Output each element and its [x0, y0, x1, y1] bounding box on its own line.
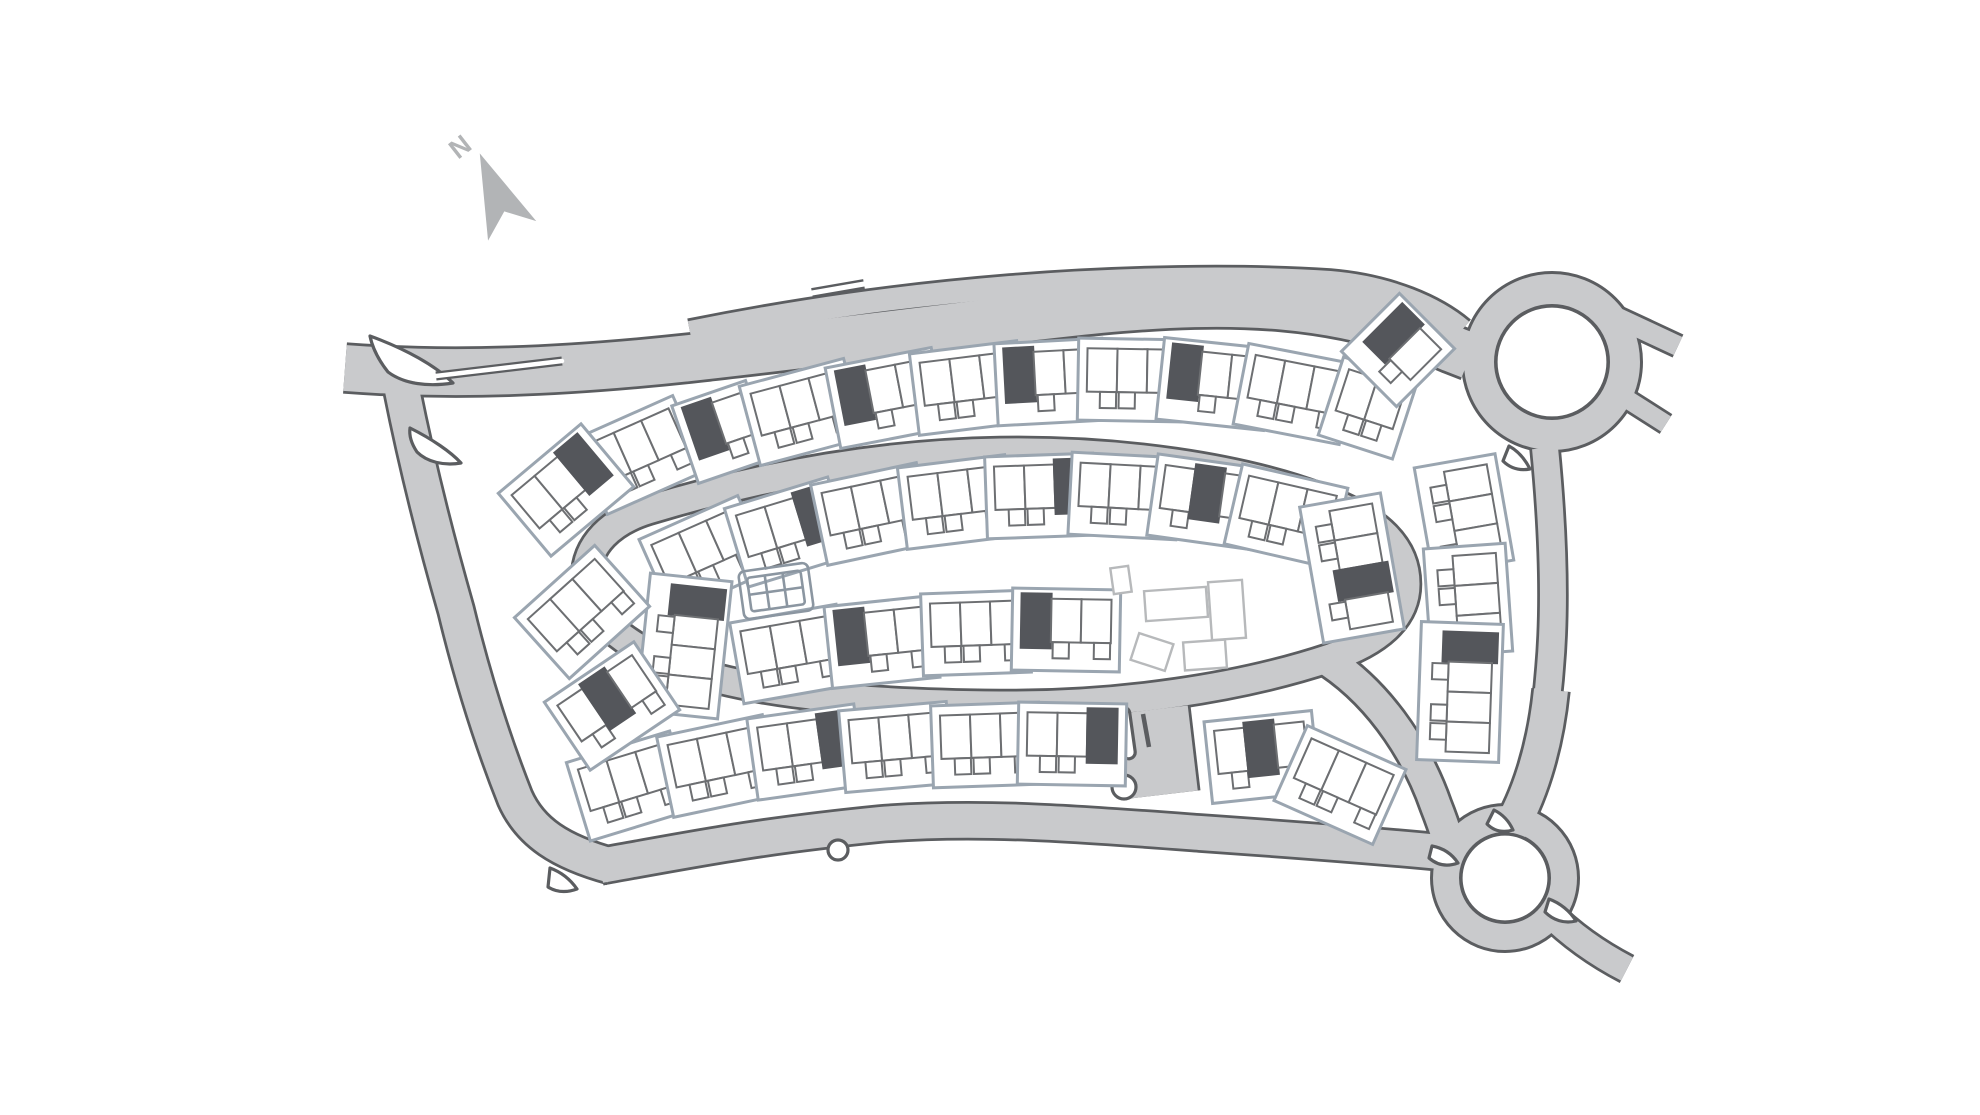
house-block[interactable] [1417, 622, 1504, 763]
house-unit[interactable] [1198, 352, 1232, 398]
house-block[interactable] [1300, 493, 1405, 643]
house-garden [779, 666, 798, 685]
house-garden [1437, 569, 1454, 586]
house-unit[interactable] [1027, 712, 1058, 756]
house-garden [795, 764, 813, 782]
house-garden [1053, 642, 1069, 658]
house-garden [1171, 510, 1189, 528]
layby-notch [828, 840, 848, 860]
house-unit[interactable] [1448, 662, 1492, 693]
house-garden [793, 423, 813, 443]
roundabout-north-triangle [1503, 446, 1530, 470]
house-unit[interactable] [1081, 599, 1112, 643]
house-unit[interactable] [930, 603, 961, 647]
house-unit[interactable] [1051, 599, 1082, 643]
future-building [1110, 566, 1131, 594]
house-unit[interactable] [994, 466, 1025, 510]
house-garden [1434, 503, 1453, 522]
house-unit[interactable] [669, 645, 715, 679]
house-garden [945, 514, 963, 532]
site-plan-map: N [0, 0, 1980, 1115]
future-building [1144, 587, 1208, 621]
house-garden [926, 516, 944, 534]
house-garden [1100, 392, 1116, 408]
house-garden [1249, 521, 1268, 540]
house-garden [1329, 602, 1348, 621]
north-arrow: N [443, 129, 536, 241]
house-unit[interactable] [1447, 692, 1491, 723]
house-unit-filled[interactable] [1003, 347, 1036, 403]
house-garden [865, 761, 883, 778]
house-unit[interactable] [848, 717, 882, 763]
row-inner-east [1300, 493, 1405, 643]
roundabout-south-island [1461, 834, 1549, 922]
house-garden [1009, 509, 1026, 526]
house-garden [1119, 392, 1135, 408]
house-garden [779, 543, 799, 563]
house-block[interactable] [1011, 588, 1120, 672]
house-garden [1276, 404, 1295, 423]
house-garden [1110, 508, 1127, 525]
house-garden [963, 645, 980, 662]
house-garden [1361, 420, 1381, 440]
house-garden [884, 759, 902, 776]
site-plan: N [0, 0, 1980, 1115]
house-unit[interactable] [1033, 350, 1065, 395]
house-unit[interactable] [1108, 464, 1140, 509]
house-unit[interactable] [1087, 348, 1118, 392]
north-label: N [443, 129, 477, 165]
parking-court [1150, 710, 1160, 795]
house-garden [689, 781, 708, 800]
future-building [1183, 640, 1227, 671]
house-garden [1432, 663, 1449, 680]
house-unit[interactable] [864, 610, 898, 656]
house-garden [1091, 507, 1108, 524]
house-garden [1430, 704, 1447, 721]
house-garden [1319, 543, 1338, 562]
house-garden [1257, 400, 1276, 419]
house-garden [1343, 415, 1363, 435]
house-unit[interactable] [1117, 349, 1148, 393]
house-unit-filled[interactable] [1021, 593, 1052, 648]
house-unit[interactable] [970, 713, 1001, 757]
house-garden [774, 428, 794, 448]
house-garden [761, 669, 780, 688]
house-unit[interactable] [940, 715, 971, 759]
house-garden [776, 766, 794, 784]
house-unit[interactable] [878, 715, 912, 761]
house-garden [1027, 508, 1044, 525]
house-garden [1267, 525, 1286, 544]
house-unit[interactable] [960, 601, 991, 645]
house-garden [955, 758, 972, 775]
house-garden [657, 615, 675, 633]
house-unit-filled[interactable] [1442, 631, 1498, 663]
house-unit[interactable] [1057, 713, 1088, 757]
house-garden [1430, 723, 1447, 740]
house-garden [621, 797, 641, 817]
house-unit[interactable] [1078, 463, 1110, 508]
house-garden [1198, 395, 1216, 413]
house-block[interactable] [1017, 702, 1126, 786]
house-unit[interactable] [1345, 592, 1393, 629]
house-garden [938, 402, 956, 420]
row-right-col [1414, 454, 1514, 763]
house-unit[interactable] [1455, 583, 1500, 616]
house-garden [1439, 588, 1456, 605]
future-building [1208, 580, 1246, 640]
house-unit[interactable] [672, 615, 718, 649]
house-garden [1059, 756, 1075, 772]
house-unit-filled[interactable] [1087, 708, 1118, 763]
future-building [1131, 633, 1174, 671]
house-garden [1232, 771, 1250, 789]
house-unit[interactable] [1452, 553, 1497, 586]
house-garden [945, 646, 962, 663]
house-garden [973, 757, 990, 774]
house-unit[interactable] [1024, 464, 1055, 508]
house-garden [708, 777, 727, 796]
house-garden [1430, 485, 1449, 504]
house-garden [876, 410, 895, 429]
house-unit[interactable] [1214, 728, 1248, 774]
house-garden [1040, 756, 1056, 772]
house-garden [870, 654, 888, 672]
house-garden [843, 529, 862, 548]
house-garden [603, 802, 623, 822]
house-garden [1094, 643, 1110, 659]
house-garden [862, 525, 881, 544]
roundabout-north-island [1496, 306, 1608, 418]
house-garden [957, 400, 975, 418]
house-garden [1038, 394, 1055, 411]
house-garden [1316, 524, 1335, 543]
house-unit[interactable] [1446, 722, 1490, 753]
